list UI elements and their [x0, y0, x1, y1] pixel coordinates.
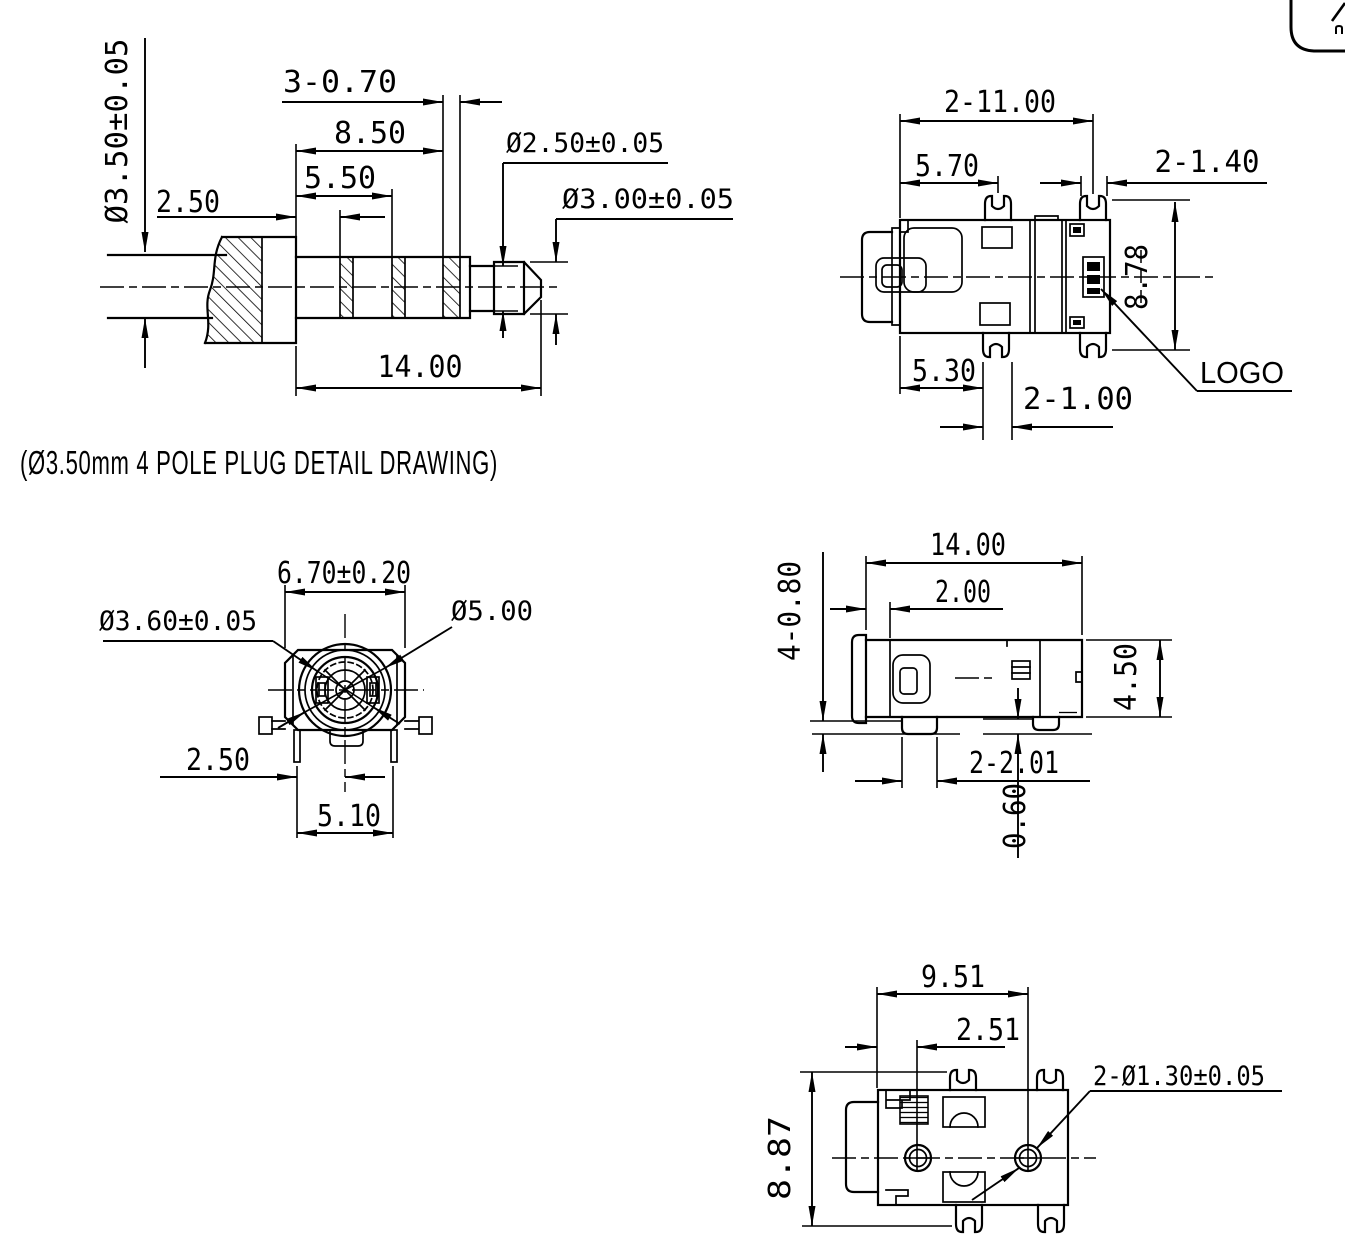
plug-ring-1 — [340, 257, 353, 318]
dim-bottom-hole-offset: 2.51 — [845, 1013, 1020, 1172]
jack-front-view: 6.70±0.20 Ø3.60±0.05 Ø5.00 2.50 5.10 — [99, 556, 533, 838]
dim-plug-neck-dia: Ø2.50±0.05 — [494, 128, 668, 338]
plug-ring-3 — [443, 257, 460, 318]
side-seating-lines — [810, 719, 1092, 734]
bottom-window-bottom — [943, 1172, 985, 1202]
dim-label-len-250: 2.50 — [156, 185, 220, 220]
dim-bottom-hole-span: 9.51 — [877, 960, 1028, 1172]
dim-bottom-body-width: 8.87 — [763, 1072, 952, 1226]
front-foot-right-link — [405, 721, 418, 729]
body-window-top — [982, 227, 1012, 248]
plug-detail-view: Ø3.50±0.05 3-0.70 8.50 5.50 2.50 — [100, 38, 734, 396]
dim-front-body-width: 6.70±0.20 — [277, 556, 411, 648]
corner-stamp-fragment — [1291, 0, 1345, 51]
mount-fork-top-right — [1080, 196, 1106, 220]
front-foot-left — [259, 717, 272, 734]
dim-label-front-width: 6.70±0.20 — [277, 556, 411, 591]
drawing-caption: (Ø3.50mm 4 POLE PLUG DETAIL DRAWING) — [20, 444, 498, 481]
body-window-bottom — [980, 303, 1010, 325]
side-leg-right — [1033, 717, 1059, 730]
plug-neck — [470, 266, 494, 311]
side-latch — [893, 655, 930, 703]
bottom-window-bottom-arc — [950, 1172, 978, 1186]
mount-fork-top-left — [985, 196, 1011, 220]
bottom-fork-top-left — [950, 1070, 976, 1090]
dim-label-plug-length: 14.00 — [378, 350, 463, 385]
bottom-front-cap — [846, 1102, 878, 1192]
dim-label-front-sleeve-dia: Ø5.00 — [451, 596, 533, 627]
side-leg-left — [902, 717, 937, 734]
dim-label-hole-span: 9.51 — [921, 960, 985, 995]
mount-fork-bottom-right — [1080, 333, 1106, 357]
jack-side-view: 14.00 2.00 4-0.80 4.50 2-2.01 — [773, 528, 1172, 858]
dim-label-fork-offset-bottom: 5.30 — [912, 354, 976, 389]
side-grate-lines — [1012, 667, 1030, 673]
dim-top-body-height: 8.78 — [1112, 200, 1190, 350]
jack-top-view: 2-11.00 5.70 2-1.40 8.78 5.30 — [840, 85, 1292, 440]
contact-slot-top-fill — [1073, 227, 1081, 233]
dim-side-front-offset: 2.00 — [830, 575, 1003, 638]
dim-label-body-height: 8.78 — [1120, 244, 1155, 310]
dim-label-len-550: 5.50 — [304, 161, 376, 196]
dim-label-bottom-width: 8.87 — [763, 1116, 798, 1200]
dim-label-fork-offset-top: 5.70 — [915, 149, 979, 184]
side-grate — [1012, 661, 1030, 679]
dim-plug-len-ring2: 5.50 — [296, 161, 392, 257]
dim-bottom-hole-dia: 2-Ø1.30±0.05 — [972, 1061, 1282, 1200]
dim-plug-tip-dia: Ø3.00±0.05 — [530, 184, 734, 345]
technical-drawing: Ø3.50±0.05 3-0.70 8.50 5.50 2.50 — [0, 0, 1345, 1256]
mount-fork-bottom-left — [983, 333, 1009, 357]
stamp-glyph-stroke — [1332, 3, 1345, 21]
bottom-window-top — [943, 1097, 985, 1127]
dim-label-neck-dia: Ø2.50±0.05 — [506, 128, 664, 159]
drawing-canvas: Ø3.50±0.05 3-0.70 8.50 5.50 2.50 — [0, 0, 1345, 1256]
dim-side-leg-pitch: 2-2.01 — [855, 737, 1090, 788]
dim-label-tip-dia: Ø3.00±0.05 — [562, 184, 734, 215]
dim-label-hole-offset: 2.51 — [956, 1013, 1020, 1048]
plug-flange-hatch — [205, 237, 262, 343]
dim-top-fork-offset-bottom: 5.30 — [900, 336, 983, 440]
dim-side-leg-width: 4-0.80 — [773, 552, 823, 772]
dim-front-hole-dia: Ø3.60±0.05 — [99, 606, 400, 724]
bottom-window-top-arc — [950, 1113, 978, 1127]
front-pin-right — [391, 730, 397, 762]
plug-tip — [494, 262, 541, 314]
dim-label-standoff: 0.60 — [998, 783, 1033, 849]
bottom-fork-bottom-left — [956, 1205, 982, 1232]
dim-label-bottom-hole-dia: 2-Ø1.30±0.05 — [1093, 1061, 1265, 1092]
logo-label: LOGO — [1200, 355, 1284, 390]
dim-label-side-length: 14.00 — [930, 528, 1006, 563]
side-front-cap — [852, 635, 866, 723]
bottom-fork-top-right — [1037, 1070, 1063, 1090]
bottom-fork-bottom-right — [1038, 1205, 1064, 1232]
dim-label-leg-width: 4-0.80 — [773, 561, 808, 661]
front-foot-right — [419, 717, 432, 734]
latch-outline — [904, 228, 962, 292]
dim-label-sleeve-dia: Ø3.50±0.05 — [100, 39, 135, 224]
dim-label-side-height: 4.50 — [1109, 643, 1144, 711]
plug-ring-2 — [392, 257, 405, 318]
contact-slot-bottom-fill — [1073, 320, 1081, 325]
jack-bottom-view: 9.51 2.51 2-Ø1.30±0.05 8.87 — [763, 960, 1282, 1232]
dim-label-hole-dia: Ø3.60±0.05 — [99, 606, 257, 637]
dim-label-fork-width-top: 2-1.40 — [1155, 145, 1260, 180]
dim-top-fork-offset: 5.70 — [900, 149, 998, 193]
dim-side-body-height: 4.50 — [1086, 640, 1172, 717]
front-bottom-tab — [330, 730, 363, 746]
dim-label-pin-span: 5.10 — [317, 799, 381, 834]
bottom-serrated-contact — [900, 1096, 928, 1124]
bottom-tabs-bottomleft — [886, 1190, 908, 1205]
dim-label-fork-width-bottom: 2-1.00 — [1023, 382, 1133, 417]
dim-label-ring-width: 3-0.70 — [283, 65, 397, 100]
dim-label-len-850: 8.50 — [334, 116, 406, 151]
dim-label-front-offset: 2.00 — [935, 575, 991, 610]
side-latch-inner — [900, 668, 917, 694]
stamp-glyph-n — [1336, 26, 1342, 34]
dim-label-fork-span: 2-11.00 — [944, 85, 1056, 120]
dim-label-pin-offset: 2.50 — [186, 743, 250, 778]
dim-label-leg-pitch: 2-2.01 — [969, 746, 1059, 781]
dim-top-fork-width: 2-1.40 — [1040, 145, 1267, 196]
front-pin-left — [294, 730, 300, 762]
side-serration — [1059, 710, 1077, 717]
